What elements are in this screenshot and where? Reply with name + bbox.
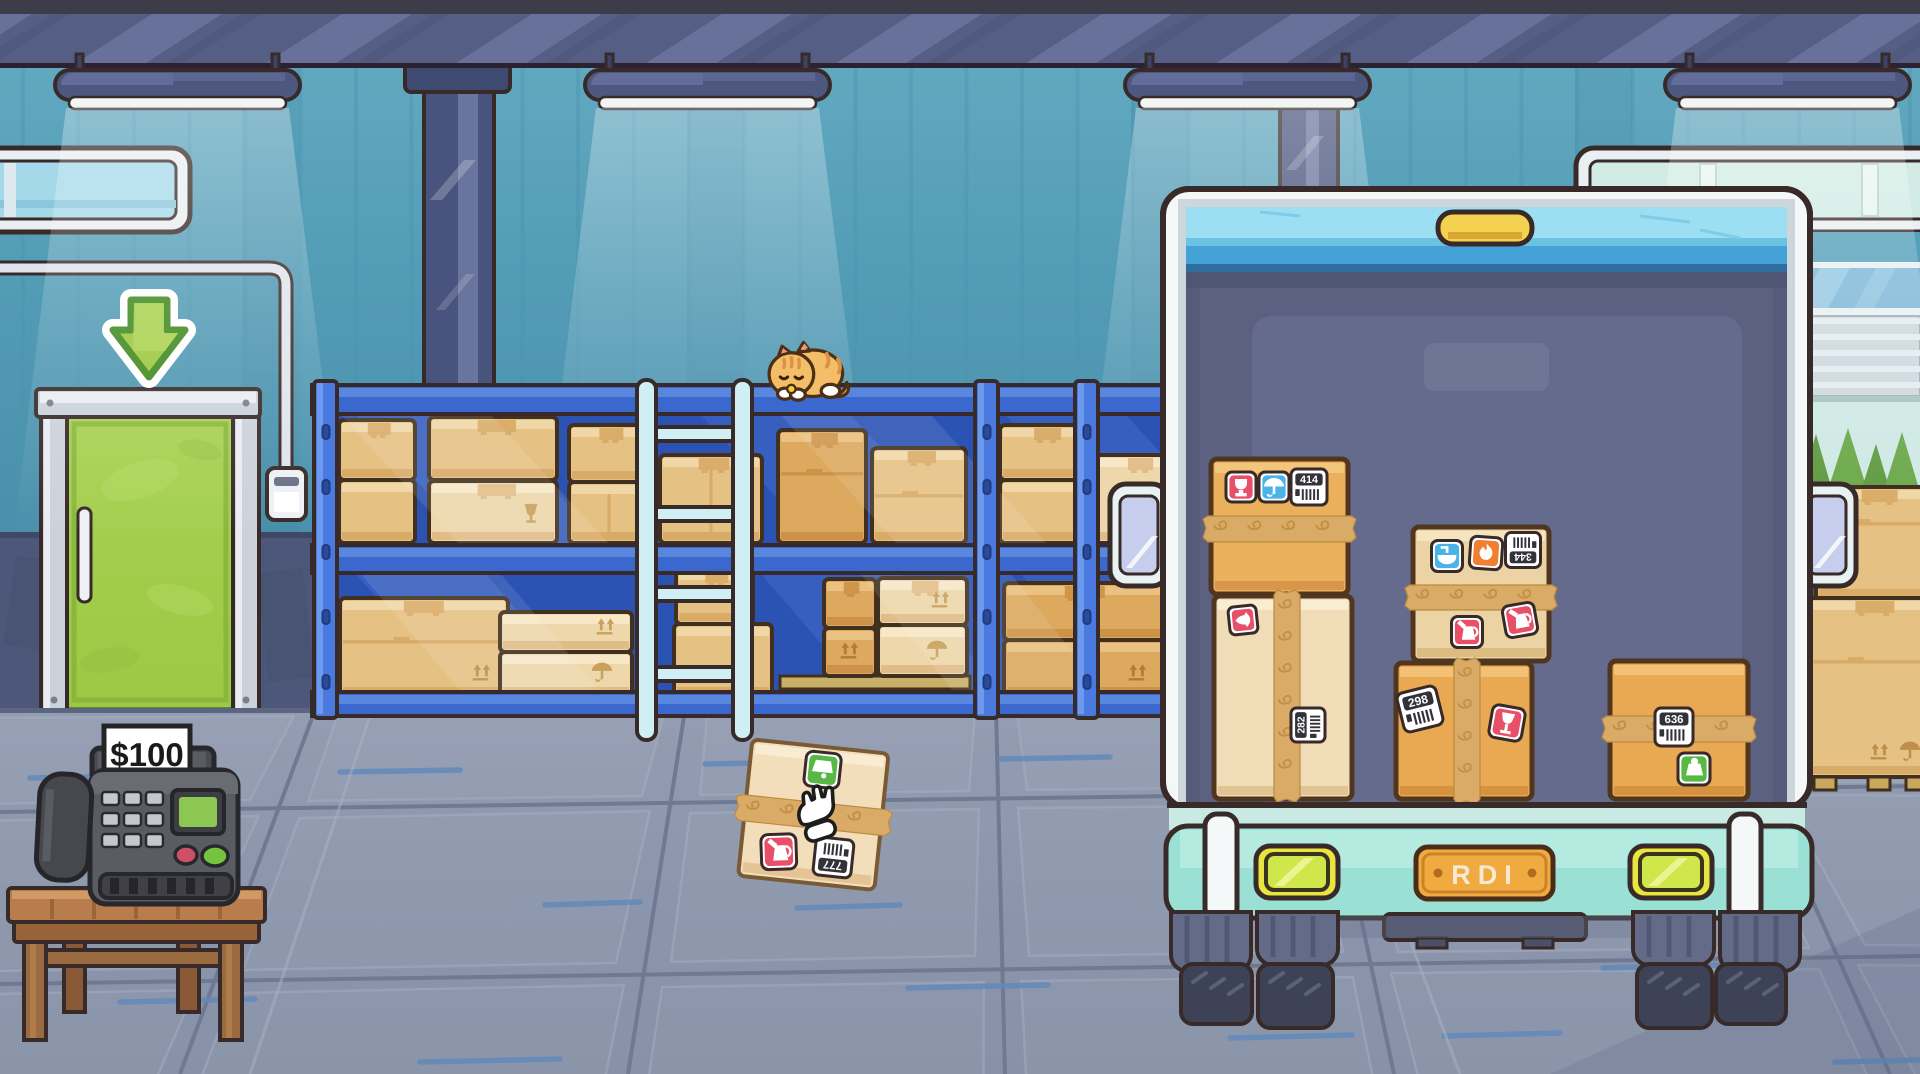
svg-text:414: 414 bbox=[1300, 474, 1318, 486]
svg-text:RDI: RDI bbox=[1451, 860, 1519, 890]
svg-text:282: 282 bbox=[1296, 716, 1307, 733]
svg-text:777: 777 bbox=[823, 857, 843, 871]
svg-text:344: 344 bbox=[1514, 551, 1532, 563]
svg-text:$100: $100 bbox=[110, 736, 183, 773]
svg-text:636: 636 bbox=[1664, 714, 1683, 726]
